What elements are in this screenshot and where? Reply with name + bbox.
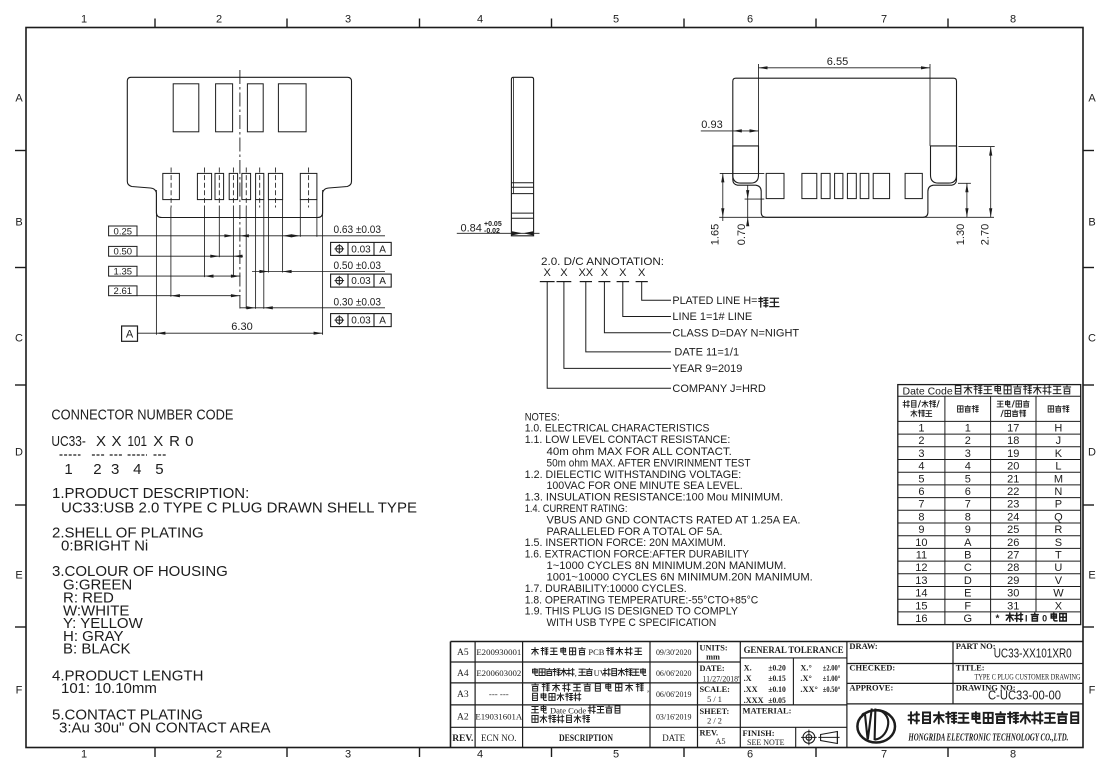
svg-text:28: 28 xyxy=(1007,562,1019,574)
svg-text:6: 6 xyxy=(918,486,924,498)
svg-text:DATE 11=1/1: DATE 11=1/1 xyxy=(674,347,739,359)
svg-text:X: X xyxy=(96,433,106,450)
svg-text:1: 1 xyxy=(64,461,72,478)
svg-text:E: E xyxy=(964,588,971,600)
svg-text:,: , xyxy=(647,684,649,694)
svg-text:12: 12 xyxy=(915,562,927,574)
svg-text:11: 11 xyxy=(916,550,927,562)
svg-text:+0.05: +0.05 xyxy=(484,221,502,228)
svg-text:±0.50°: ±0.50° xyxy=(823,685,841,694)
svg-text:0: 0 xyxy=(1042,614,1047,624)
svg-text:X: X xyxy=(560,267,568,279)
svg-text:TYPE C PLUG CUSTOMER DRAWING: TYPE C PLUG CUSTOMER DRAWING xyxy=(975,673,1081,682)
svg-text:.X°: .X° xyxy=(800,674,811,683)
svg-text:X: X xyxy=(544,267,552,279)
svg-text:E200930001: E200930001 xyxy=(476,647,521,657)
svg-text:T: T xyxy=(1055,550,1062,562)
svg-text:C: C xyxy=(1088,333,1096,345)
svg-text:COMPANY J=HRD: COMPANY J=HRD xyxy=(672,383,765,395)
svg-text:CLASS D=DAY N=NIGHT: CLASS D=DAY N=NIGHT xyxy=(672,327,799,339)
svg-text:0.93: 0.93 xyxy=(701,119,722,131)
svg-text:X: X xyxy=(601,267,609,279)
svg-text:6: 6 xyxy=(747,749,753,761)
svg-text:6.30: 6.30 xyxy=(231,321,252,333)
svg-text:2.70: 2.70 xyxy=(979,224,991,245)
svg-text:B: B xyxy=(15,217,22,229)
svg-text:0.03: 0.03 xyxy=(351,276,371,287)
svg-text:M: M xyxy=(1054,473,1063,485)
svg-text:.XX°: .XX° xyxy=(800,685,817,694)
svg-text:X.°: X.° xyxy=(800,664,811,673)
svg-text:0.84: 0.84 xyxy=(461,223,482,235)
svg-text:14: 14 xyxy=(915,588,927,600)
svg-text:2: 2 xyxy=(216,14,222,26)
svg-text:2 / 2: 2 / 2 xyxy=(707,717,722,726)
svg-text:D: D xyxy=(1088,447,1096,459)
svg-text:CONNECTOR NUMBER CODE: CONNECTOR NUMBER CODE xyxy=(51,407,233,424)
svg-text:A: A xyxy=(379,244,386,255)
svg-text:A4: A4 xyxy=(457,669,469,679)
svg-text:1.1. LOW LEVEL CONTACT RESISTA: 1.1. LOW LEVEL CONTACT RESISTANCE: xyxy=(525,434,731,446)
svg-text:R: R xyxy=(1054,524,1062,536)
svg-text:F: F xyxy=(1089,685,1096,697)
svg-text:1: 1 xyxy=(81,749,87,761)
svg-text:±1.00°: ±1.00° xyxy=(823,674,841,683)
svg-text:E: E xyxy=(1088,570,1095,582)
svg-text:LINE 1=1# LINE: LINE 1=1# LINE xyxy=(672,311,752,323)
svg-text:A: A xyxy=(15,93,23,105)
svg-text:W: W xyxy=(1053,588,1064,600)
svg-text:100VAC FOR ONE MINUTE SEA LEVE: 100VAC FOR ONE MINUTE SEA LEVEL. xyxy=(547,480,743,492)
svg-text:CHECKED:: CHECKED: xyxy=(849,663,895,673)
svg-text:±0.05: ±0.05 xyxy=(768,696,786,705)
svg-text:APPROVE:: APPROVE: xyxy=(849,683,893,693)
svg-text:A5: A5 xyxy=(715,737,725,746)
svg-text:1.5. INSERTION FORCE: 20N MAXI: 1.5. INSERTION FORCE: 20N MAXIMUM. xyxy=(525,537,726,549)
svg-text:40m ohm MAX FOR ALL CONTACT.: 40m ohm MAX FOR ALL CONTACT. xyxy=(547,446,732,458)
svg-text:K: K xyxy=(1055,448,1063,460)
svg-text:.X: .X xyxy=(744,674,752,683)
svg-text:5: 5 xyxy=(965,473,971,485)
svg-text:DATE: DATE xyxy=(662,733,685,743)
svg-text:MATERIAL:: MATERIAL: xyxy=(743,706,792,716)
svg-text:.XX: .XX xyxy=(744,685,758,694)
svg-text:16: 16 xyxy=(915,613,927,625)
svg-text:29: 29 xyxy=(1007,575,1019,587)
svg-text:G: G xyxy=(964,613,973,625)
svg-text:06/06'2019: 06/06'2019 xyxy=(656,689,692,699)
svg-text:03/16'2019: 03/16'2019 xyxy=(656,712,692,722)
svg-text:±0.15: ±0.15 xyxy=(768,674,786,683)
svg-text:X.: X. xyxy=(744,664,752,673)
svg-text:1.65: 1.65 xyxy=(709,224,721,245)
svg-text:,: , xyxy=(575,669,577,678)
svg-text:0: 0 xyxy=(185,433,193,450)
svg-text:±0.20: ±0.20 xyxy=(768,664,786,673)
svg-text:25: 25 xyxy=(1007,524,1019,536)
svg-text:F: F xyxy=(16,685,23,697)
svg-text:22: 22 xyxy=(1007,486,1019,498)
svg-text:3: 3 xyxy=(918,448,924,460)
svg-text:6: 6 xyxy=(965,486,971,498)
svg-text:X: X xyxy=(619,267,627,279)
svg-text:101: 101 xyxy=(128,433,148,450)
svg-text:0.50 ±0.03: 0.50 ±0.03 xyxy=(334,260,382,272)
svg-text:20: 20 xyxy=(1007,461,1019,473)
svg-text:1.3. INSULATION RESISTANCE:100: 1.3. INSULATION RESISTANCE:100 Mou MINIM… xyxy=(525,492,784,504)
svg-text:2: 2 xyxy=(93,461,101,478)
svg-text:DRAW:: DRAW: xyxy=(849,641,878,651)
svg-text:D: D xyxy=(15,447,23,459)
svg-text:UC33:USB 2.0 TYPE C PLUG DRAWN: UC33:USB 2.0 TYPE C PLUG DRAWN SHELL TYP… xyxy=(61,500,417,517)
svg-text:P: P xyxy=(1055,499,1062,511)
svg-text:0.63 ±0.03: 0.63 ±0.03 xyxy=(334,224,382,236)
svg-text:101: 10.10mm: 101: 10.10mm xyxy=(61,680,157,697)
svg-text:18: 18 xyxy=(1007,435,1019,447)
svg-text:A: A xyxy=(126,328,134,340)
svg-text:Date Code: Date Code xyxy=(903,386,953,398)
svg-text:1: 1 xyxy=(965,423,971,435)
svg-text:3: 3 xyxy=(345,749,351,761)
svg-text:E: E xyxy=(15,570,22,582)
svg-text:DATE:: DATE: xyxy=(700,664,725,673)
svg-text:3: 3 xyxy=(965,448,971,460)
svg-text:--- ---: --- --- xyxy=(489,689,509,699)
svg-text:I: I xyxy=(1025,614,1028,624)
svg-text:4: 4 xyxy=(965,461,971,473)
svg-text:A: A xyxy=(1088,93,1096,105)
svg-text:9: 9 xyxy=(918,524,924,536)
svg-text:26: 26 xyxy=(1007,537,1019,549)
svg-text:2: 2 xyxy=(216,749,222,761)
svg-text:SEE NOTE: SEE NOTE xyxy=(747,738,785,747)
svg-text:A: A xyxy=(379,316,386,327)
svg-text:GENERAL TOLERANCE: GENERAL TOLERANCE xyxy=(744,646,844,656)
svg-text:E19031601A: E19031601A xyxy=(475,712,523,722)
svg-text:.XXX: .XXX xyxy=(744,696,764,705)
svg-text:1001~10000 CYCLES 6N MINIMUM.2: 1001~10000 CYCLES 6N MINIMUM.20N MANIMUM… xyxy=(547,571,813,583)
svg-text:SHEET:: SHEET: xyxy=(700,707,730,716)
svg-text:24: 24 xyxy=(1007,511,1019,523)
svg-text:R: R xyxy=(169,433,180,450)
svg-text:23: 23 xyxy=(1007,499,1019,511)
svg-text:8: 8 xyxy=(918,511,924,523)
svg-text:YEAR 9=2019: YEAR 9=2019 xyxy=(672,363,742,375)
svg-text:REV.: REV. xyxy=(452,734,473,744)
svg-text:09/30'2020: 09/30'2020 xyxy=(656,647,692,657)
svg-text:1.35: 1.35 xyxy=(114,267,133,278)
svg-text:*: * xyxy=(996,614,1000,625)
svg-text:3: 3 xyxy=(345,14,351,26)
svg-text:UC33-XX101XR0: UC33-XX101XR0 xyxy=(994,646,1072,660)
svg-text:D: D xyxy=(964,575,972,587)
svg-text:A5: A5 xyxy=(457,648,469,658)
svg-text:5: 5 xyxy=(155,461,163,478)
svg-text:1.6. EXTRACTION FORCE:AFTER DU: 1.6. EXTRACTION FORCE:AFTER DURABILITY xyxy=(525,548,749,560)
svg-text:±2.00°: ±2.00° xyxy=(823,664,841,673)
svg-text:X: X xyxy=(153,433,163,450)
svg-text:0.50: 0.50 xyxy=(114,247,133,258)
svg-text:2.61: 2.61 xyxy=(114,286,133,297)
svg-text:8: 8 xyxy=(1010,749,1016,761)
svg-text:6: 6 xyxy=(747,14,753,26)
svg-text:27: 27 xyxy=(1007,550,1019,562)
svg-text:FINISH:: FINISH: xyxy=(743,728,775,738)
svg-text:PART NO:: PART NO: xyxy=(956,641,996,651)
svg-text:F: F xyxy=(964,600,971,612)
svg-text:±0.10: ±0.10 xyxy=(768,685,786,694)
svg-text:1: 1 xyxy=(918,423,924,435)
svg-text:5: 5 xyxy=(613,749,619,761)
svg-text:1.30: 1.30 xyxy=(955,224,967,245)
svg-text:Date Code: Date Code xyxy=(550,706,586,716)
svg-text:5: 5 xyxy=(613,14,619,26)
svg-text:0.03: 0.03 xyxy=(351,244,371,255)
svg-text:3: 3 xyxy=(111,461,119,478)
svg-text:1.8. OPERATING TEMPERATURE:-55: 1.8. OPERATING TEMPERATURE:-55°CTO+85°C xyxy=(525,594,759,606)
svg-text:B: B xyxy=(964,550,971,562)
svg-text:A2: A2 xyxy=(457,713,469,723)
svg-text:9: 9 xyxy=(965,524,971,536)
svg-text:1.2. DIELECTIC WITHSTANDING VO: 1.2. DIELECTIC WITHSTANDING VOLTAGE: xyxy=(525,469,742,481)
svg-text:6.55: 6.55 xyxy=(827,56,848,68)
svg-text:10: 10 xyxy=(915,537,927,549)
svg-text:L: L xyxy=(1055,461,1061,473)
svg-text:UNITS:: UNITS: xyxy=(700,644,728,653)
svg-text:06/06'2020: 06/06'2020 xyxy=(656,668,692,678)
svg-text:C: C xyxy=(964,562,972,574)
svg-text:Q: Q xyxy=(1054,511,1063,523)
svg-text:PLATED LINE H=: PLATED LINE H= xyxy=(672,295,757,307)
svg-text:VBUS AND GND CONTACTS RATED AT: VBUS AND GND CONTACTS RATED AT 1.25A EA. xyxy=(547,514,801,526)
svg-text:WITH USB TYPE C SPECIFICATION: WITH USB TYPE C SPECIFICATION xyxy=(547,617,717,629)
svg-text:17: 17 xyxy=(1007,423,1019,435)
svg-text:UC33-: UC33- xyxy=(51,433,86,450)
svg-text:13: 13 xyxy=(915,575,927,587)
svg-text:A: A xyxy=(964,537,972,549)
svg-text:PCB: PCB xyxy=(588,647,604,657)
svg-text:0.25: 0.25 xyxy=(114,226,133,237)
svg-text:50m ohm MAX. AFTER ENVIRINMENT: 50m ohm MAX. AFTER ENVIRINMENT TEST xyxy=(547,457,751,469)
svg-text:5: 5 xyxy=(918,473,924,485)
svg-text:5 / 1: 5 / 1 xyxy=(707,695,722,704)
svg-text:8: 8 xyxy=(965,511,971,523)
svg-text:0.30 ±0.03: 0.30 ±0.03 xyxy=(334,296,382,308)
svg-text:mm: mm xyxy=(706,653,720,662)
svg-text:B: B xyxy=(1088,217,1095,229)
svg-text:C-UC33-00-00: C-UC33-00-00 xyxy=(988,688,1061,702)
svg-text:7: 7 xyxy=(965,499,971,511)
svg-text:XX: XX xyxy=(578,267,593,279)
svg-text:7: 7 xyxy=(881,14,887,26)
svg-text:-0.02: -0.02 xyxy=(484,228,500,235)
svg-text:15: 15 xyxy=(915,600,927,612)
svg-text:SCALE:: SCALE: xyxy=(700,685,731,694)
svg-text:3:Au 30u" ON CONTACT AREA: 3:Au 30u" ON CONTACT AREA xyxy=(59,720,271,737)
svg-text:1: 1 xyxy=(81,14,87,26)
svg-text:1.0. ELECTRICAL CHARACTERISTIC: 1.0. ELECTRICAL CHARACTERISTICS xyxy=(525,422,710,434)
svg-text:1.7. DURABILITY:10000 CYCLES.: 1.7. DURABILITY:10000 CYCLES. xyxy=(525,583,687,595)
svg-text:2: 2 xyxy=(918,435,924,447)
svg-text:21: 21 xyxy=(1007,473,1019,485)
svg-text:7: 7 xyxy=(918,499,924,511)
svg-text:1.9. THIS PLUG IS DESIGNED TO: 1.9. THIS PLUG IS DESIGNED TO COMPLY xyxy=(525,606,738,618)
svg-text:N: N xyxy=(1054,486,1062,498)
svg-text:J: J xyxy=(1056,435,1062,447)
svg-text:4: 4 xyxy=(918,461,924,473)
svg-text:0:BRIGHT Ni: 0:BRIGHT Ni xyxy=(61,537,148,554)
svg-text:E200603002: E200603002 xyxy=(476,668,521,678)
svg-text:8: 8 xyxy=(1010,14,1016,26)
svg-text:C: C xyxy=(15,333,23,345)
svg-text:11/27/2018': 11/27/2018' xyxy=(703,674,740,684)
svg-text:ECN NO.: ECN NO. xyxy=(481,733,517,743)
svg-text:S: S xyxy=(1055,537,1062,549)
svg-text:31: 31 xyxy=(1007,600,1019,612)
svg-text:4: 4 xyxy=(477,749,483,761)
svg-text:V: V xyxy=(1055,575,1063,587)
svg-text:19: 19 xyxy=(1007,448,1019,460)
svg-text:30: 30 xyxy=(1007,588,1019,600)
svg-text:A: A xyxy=(379,276,386,287)
svg-text:HONGRIDA ELECTRONIC TECHNOLOGY: HONGRIDA ELECTRONIC TECHNOLOGY CO.,LTD. xyxy=(908,732,1069,743)
svg-text:A3: A3 xyxy=(457,690,469,700)
svg-text:B: BLACK: B: BLACK xyxy=(63,641,131,658)
svg-text:4: 4 xyxy=(133,461,141,478)
svg-text:1.4. CURRENT RATING:: 1.4. CURRENT RATING: xyxy=(525,503,628,515)
svg-text:7: 7 xyxy=(881,749,887,761)
svg-text:4: 4 xyxy=(477,14,483,26)
svg-text:0.03: 0.03 xyxy=(351,316,371,327)
svg-text:1~1000 CYCLES 8N MINIMUM.20N M: 1~1000 CYCLES 8N MINIMUM.20N MANIMUM. xyxy=(547,560,787,572)
svg-text:DESCRIPTION: DESCRIPTION xyxy=(559,734,613,744)
svg-text:TITLE:: TITLE: xyxy=(956,663,985,673)
svg-text:X: X xyxy=(638,267,646,279)
svg-text:0.70: 0.70 xyxy=(736,224,748,245)
svg-text:H: H xyxy=(1054,423,1062,435)
svg-text:X: X xyxy=(111,433,121,450)
svg-text:X: X xyxy=(1055,600,1063,612)
svg-text:2: 2 xyxy=(965,435,971,447)
svg-text:U: U xyxy=(1054,562,1062,574)
